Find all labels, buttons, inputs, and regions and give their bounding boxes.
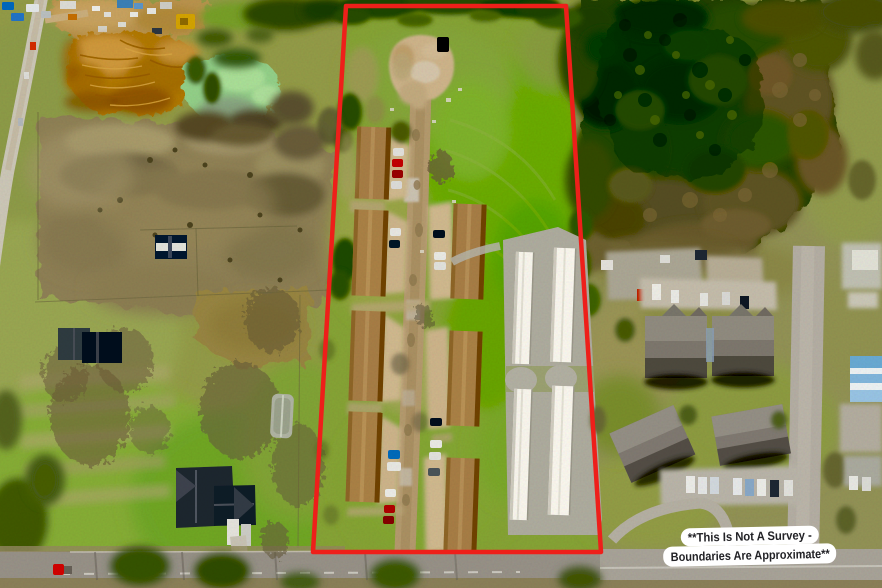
- svg-text:**This Is Not A Survey -: **This Is Not A Survey -: [688, 528, 812, 545]
